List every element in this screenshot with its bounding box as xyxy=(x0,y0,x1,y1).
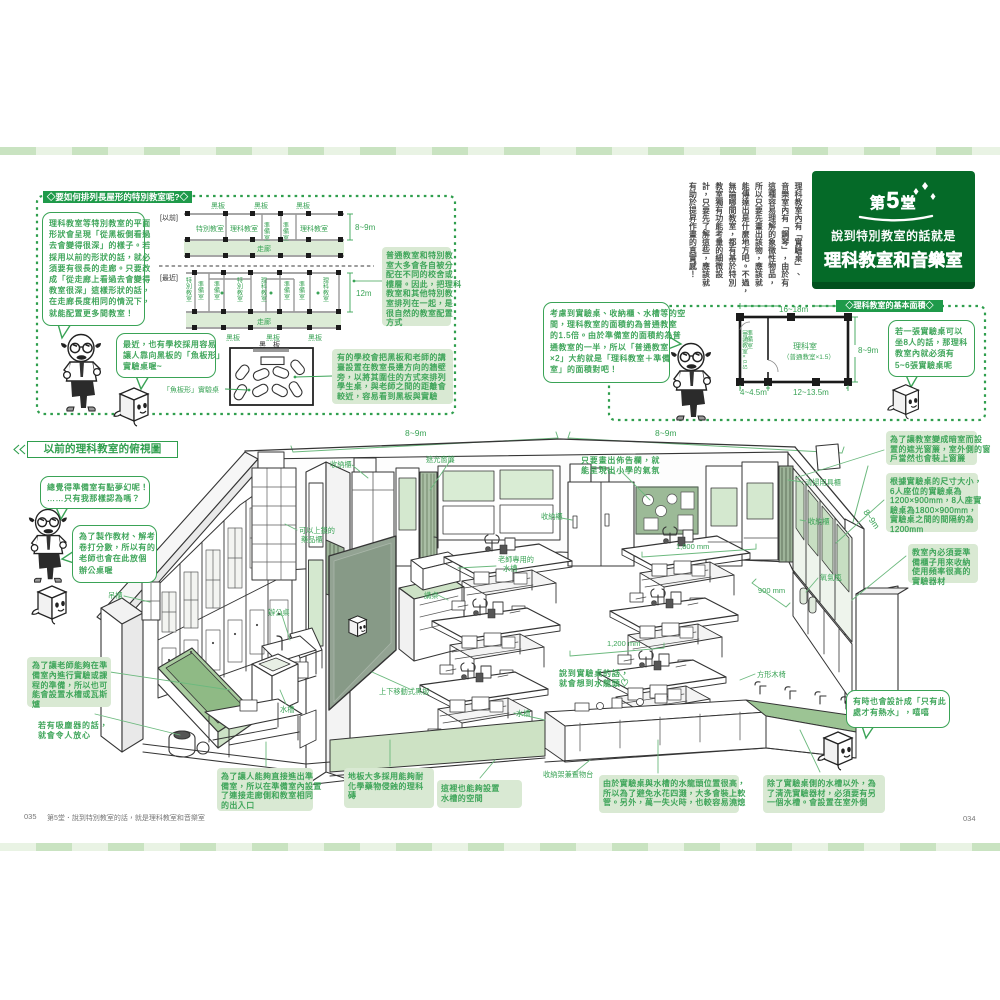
svg-text:特別教室: 特別教室 xyxy=(185,276,192,302)
svg-text:收納櫃: 收納櫃 xyxy=(808,517,830,526)
svg-text:1,200 mm: 1,200 mm xyxy=(607,639,640,648)
svg-text:黑板: 黑板 xyxy=(226,333,240,342)
svg-text:黑板: 黑板 xyxy=(254,201,268,210)
svg-text:特別教室: 特別教室 xyxy=(196,224,224,233)
svg-text:氧氣瓶: 氧氣瓶 xyxy=(820,573,842,582)
svg-text:準備室: 準備室 xyxy=(197,280,204,299)
svg-text:12m: 12m xyxy=(356,289,372,298)
svg-text:老師專用的: 老師專用的 xyxy=(498,555,534,564)
svg-text:講桌: 講桌 xyxy=(424,591,438,600)
svg-text:理科教室: 理科教室 xyxy=(260,277,267,302)
svg-text:理科教室: 理科教室 xyxy=(230,224,258,233)
svg-text:準備室: 準備室 xyxy=(282,221,289,240)
svg-text:準備室: 準備室 xyxy=(298,280,305,299)
svg-text:12~13.5m: 12~13.5m xyxy=(793,388,829,397)
svg-text:準備室: 準備室 xyxy=(213,280,220,299)
svg-text:藥品櫃: 藥品櫃 xyxy=(301,535,323,544)
svg-text:準備室: 準備室 xyxy=(283,280,290,299)
svg-text:收納架兼置物台: 收納架兼置物台 xyxy=(543,770,593,779)
svg-text:理科室: 理科室 xyxy=(793,341,817,351)
svg-text:吊櫃: 吊櫃 xyxy=(108,591,122,600)
svg-text:方形木椅: 方形木椅 xyxy=(757,670,786,679)
svg-text:辦公桌: 辦公桌 xyxy=(268,608,290,617)
svg-text:收納櫃: 收納櫃 xyxy=(541,512,563,521)
svg-text:清掃用具櫃: 清掃用具櫃 xyxy=(805,478,841,487)
svg-text:（普通教室×0.5）: （普通教室×0.5） xyxy=(741,326,748,373)
svg-text:黑板: 黑板 xyxy=(296,201,310,210)
svg-text:黑板: 黑板 xyxy=(266,333,280,342)
svg-text:8~9m: 8~9m xyxy=(858,346,879,355)
svg-text:4~4.5m: 4~4.5m xyxy=(740,388,767,397)
svg-text:[最近]: [最近] xyxy=(160,273,178,282)
svg-text:理科教室: 理科教室 xyxy=(322,277,329,302)
svg-text:水槽: 水槽 xyxy=(280,705,294,714)
svg-text:走廊: 走廊 xyxy=(257,244,271,253)
svg-text:上下移動式黑板: 上下移動式黑板 xyxy=(379,687,429,696)
svg-text:（普通教室×1.5）: （普通教室×1.5） xyxy=(783,352,835,361)
svg-text:黑板: 黑板 xyxy=(211,201,225,210)
svg-text:遮光窗簾: 遮光窗簾 xyxy=(426,455,455,464)
svg-text:準備室: 準備室 xyxy=(263,221,270,240)
svg-text:理科教室: 理科教室 xyxy=(300,224,328,233)
svg-text:可以上鎖的: 可以上鎖的 xyxy=(299,526,335,535)
svg-text:收納櫃: 收納櫃 xyxy=(330,460,352,469)
svg-text:8~9m: 8~9m xyxy=(655,428,677,438)
svg-text:「魚板形」實驗桌: 「魚板形」實驗桌 xyxy=(163,385,219,394)
svg-text:8~9m: 8~9m xyxy=(405,428,427,438)
svg-text:特別教室: 特別教室 xyxy=(236,276,243,302)
svg-text:[以前]: [以前] xyxy=(160,213,178,222)
svg-text:水槽: 水槽 xyxy=(503,564,517,573)
svg-text:1,800 mm: 1,800 mm xyxy=(676,542,709,551)
svg-text:黑板: 黑板 xyxy=(308,333,322,342)
svg-text:8~9m: 8~9m xyxy=(355,223,376,232)
svg-text:走廊: 走廊 xyxy=(257,317,271,326)
